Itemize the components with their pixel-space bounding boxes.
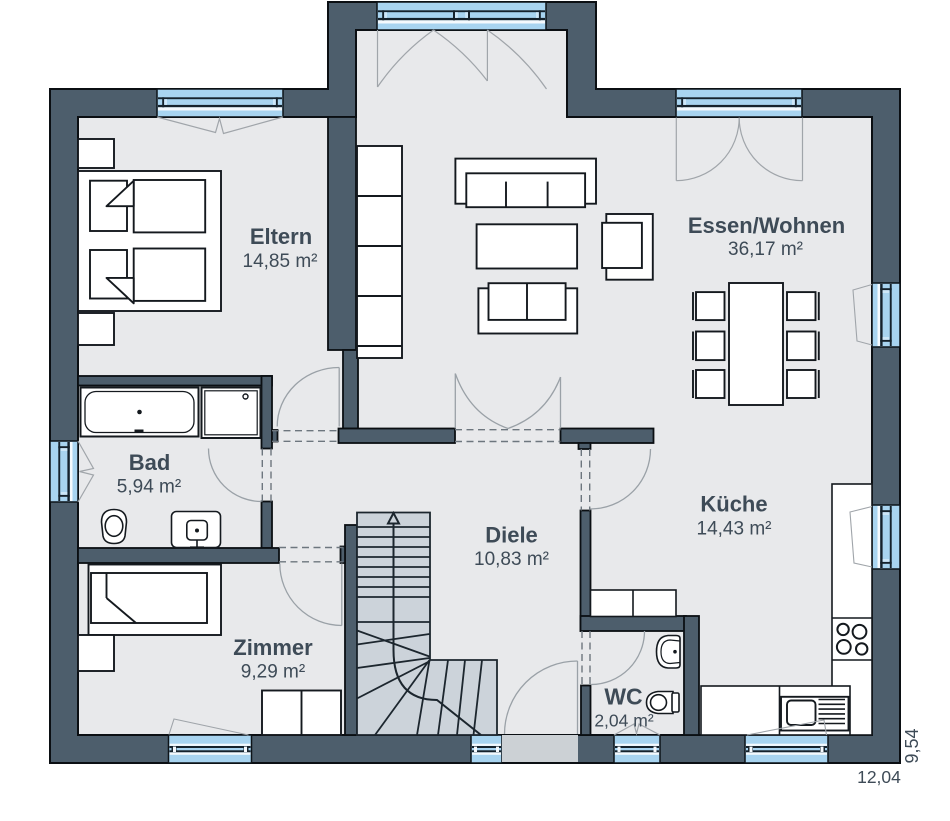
svg-text:Essen/Wohnen: Essen/Wohnen	[688, 213, 845, 238]
svg-text:36,17 m²: 36,17 m²	[728, 239, 803, 260]
svg-text:Küche: Küche	[700, 492, 767, 517]
svg-text:Diele: Diele	[485, 523, 538, 548]
svg-text:9,29 m²: 9,29 m²	[241, 662, 305, 683]
svg-text:5,94 m²: 5,94 m²	[117, 477, 181, 498]
svg-text:14,85 m²: 14,85 m²	[243, 251, 318, 272]
svg-text:9,54: 9,54	[902, 728, 922, 763]
svg-text:14,43 m²: 14,43 m²	[697, 519, 772, 540]
svg-text:WC: WC	[604, 684, 642, 710]
svg-text:10,83 m²: 10,83 m²	[474, 549, 549, 570]
svg-text:2,04 m²: 2,04 m²	[594, 711, 653, 731]
svg-text:Eltern: Eltern	[250, 224, 312, 249]
svg-text:12,04: 12,04	[857, 767, 901, 787]
svg-text:Bad: Bad	[129, 450, 171, 475]
svg-text:Zimmer: Zimmer	[233, 635, 313, 660]
